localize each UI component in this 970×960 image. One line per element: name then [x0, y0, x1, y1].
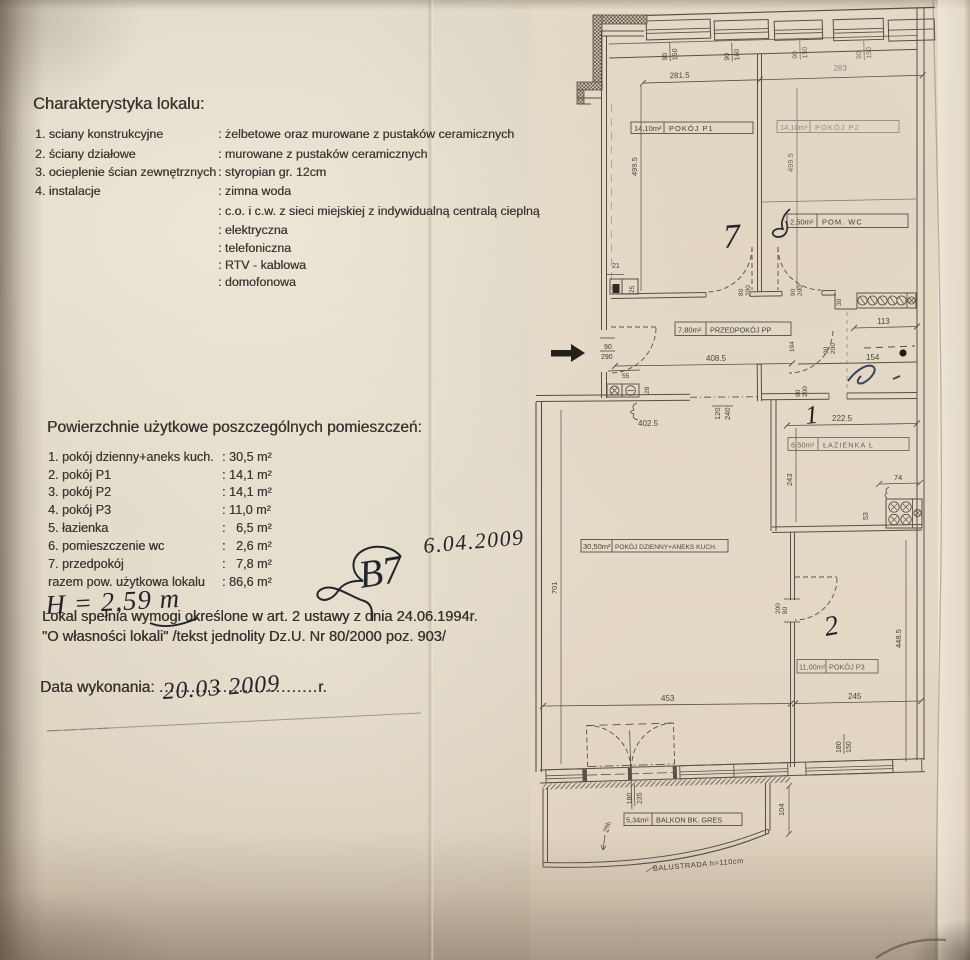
svg-text:14,10m²: 14,10m²	[780, 123, 808, 132]
svg-text:2: 2	[822, 610, 841, 643]
svg-text:28: 28	[644, 386, 651, 394]
svg-text:120: 120	[713, 407, 722, 420]
svg-text:53: 53	[863, 512, 870, 520]
svg-text:281.5: 281.5	[670, 71, 691, 81]
svg-text:90: 90	[795, 389, 802, 397]
svg-text:6,50m²: 6,50m²	[791, 441, 815, 450]
svg-text:180: 180	[836, 741, 843, 753]
svg-text:150: 150	[802, 47, 809, 59]
svg-text:499.5: 499.5	[630, 157, 639, 176]
svg-text:80: 80	[782, 606, 789, 614]
svg-text:499.5: 499.5	[786, 153, 795, 172]
svg-text:30: 30	[836, 298, 843, 306]
svg-text:150: 150	[866, 47, 873, 59]
svg-text:BALUSTRADA h=110cm: BALUSTRADA h=110cm	[652, 856, 744, 873]
svg-text:55: 55	[622, 373, 630, 380]
svg-text:290: 290	[601, 354, 613, 361]
svg-text:1: 1	[804, 400, 820, 430]
svg-text:90: 90	[724, 53, 731, 61]
svg-text:90: 90	[790, 288, 797, 296]
svg-text:H = 2,59 m: H = 2,59 m	[44, 583, 181, 620]
svg-text:POKÓJ P3: POKÓJ P3	[829, 663, 865, 672]
svg-text:30,50m²: 30,50m²	[583, 542, 611, 551]
svg-text:POM. WC: POM. WC	[822, 218, 863, 227]
svg-text:402.5: 402.5	[638, 419, 659, 428]
svg-text:90: 90	[792, 51, 799, 59]
svg-text:200: 200	[745, 285, 752, 296]
svg-text:154: 154	[866, 353, 880, 362]
svg-text:POKÓJ P1: POKÓJ P1	[669, 124, 714, 133]
svg-text:POKÓJ P2: POKÓJ P2	[815, 123, 860, 132]
svg-text:11,00m²: 11,00m²	[799, 663, 826, 672]
svg-text:240: 240	[723, 407, 732, 420]
svg-text:POKÓJ DZIENNY+ANEKS KUCH.: POKÓJ DZIENNY+ANEKS KUCH.	[615, 542, 717, 551]
svg-text:90: 90	[856, 51, 863, 59]
svg-text:200: 200	[802, 386, 809, 397]
svg-text:408.5: 408.5	[706, 354, 727, 363]
svg-text:5,34m²: 5,34m²	[626, 816, 649, 825]
svg-text:235: 235	[636, 792, 643, 804]
svg-text:200: 200	[830, 343, 837, 354]
svg-text:2,50m²: 2,50m²	[790, 218, 814, 227]
svg-text:194: 194	[789, 341, 796, 352]
svg-text:453: 453	[661, 694, 675, 703]
svg-text:6.04.2009: 6.04.2009	[422, 524, 525, 558]
svg-text:20.03 2009: 20.03 2009	[162, 671, 282, 705]
svg-text:74: 74	[894, 473, 902, 482]
svg-text:104: 104	[777, 803, 786, 816]
svg-text:80: 80	[738, 288, 745, 296]
svg-text:160: 160	[734, 49, 741, 61]
svg-text:7: 7	[722, 218, 744, 256]
svg-text:200: 200	[775, 603, 782, 614]
svg-text:200: 200	[797, 285, 804, 296]
svg-text:ŁAZIENKA Ł: ŁAZIENKA Ł	[823, 441, 874, 450]
svg-text:701: 701	[550, 581, 559, 594]
svg-text:90: 90	[662, 52, 669, 60]
svg-text:25: 25	[629, 285, 636, 293]
svg-text:283: 283	[833, 63, 847, 72]
svg-text:222.5: 222.5	[832, 414, 853, 423]
svg-text:2%: 2%	[601, 820, 613, 833]
svg-text:448.5: 448.5	[894, 629, 903, 648]
svg-text:7,80m²: 7,80m²	[678, 326, 702, 335]
svg-text:245: 245	[848, 692, 862, 701]
svg-text:BALKON BK. GRES: BALKON BK. GRES	[656, 816, 722, 825]
svg-text:180: 180	[626, 792, 633, 804]
svg-text:243: 243	[785, 473, 794, 486]
svg-text:150: 150	[846, 741, 853, 753]
svg-text:90: 90	[604, 344, 612, 351]
svg-text:150: 150	[672, 48, 679, 60]
svg-text:21: 21	[612, 263, 620, 270]
svg-text:PRZEDPOKÓJ PP: PRZEDPOKÓJ PP	[710, 326, 771, 335]
svg-text:113: 113	[877, 317, 890, 326]
svg-text:14,10m²: 14,10m²	[634, 124, 662, 133]
svg-text:90: 90	[823, 346, 830, 354]
